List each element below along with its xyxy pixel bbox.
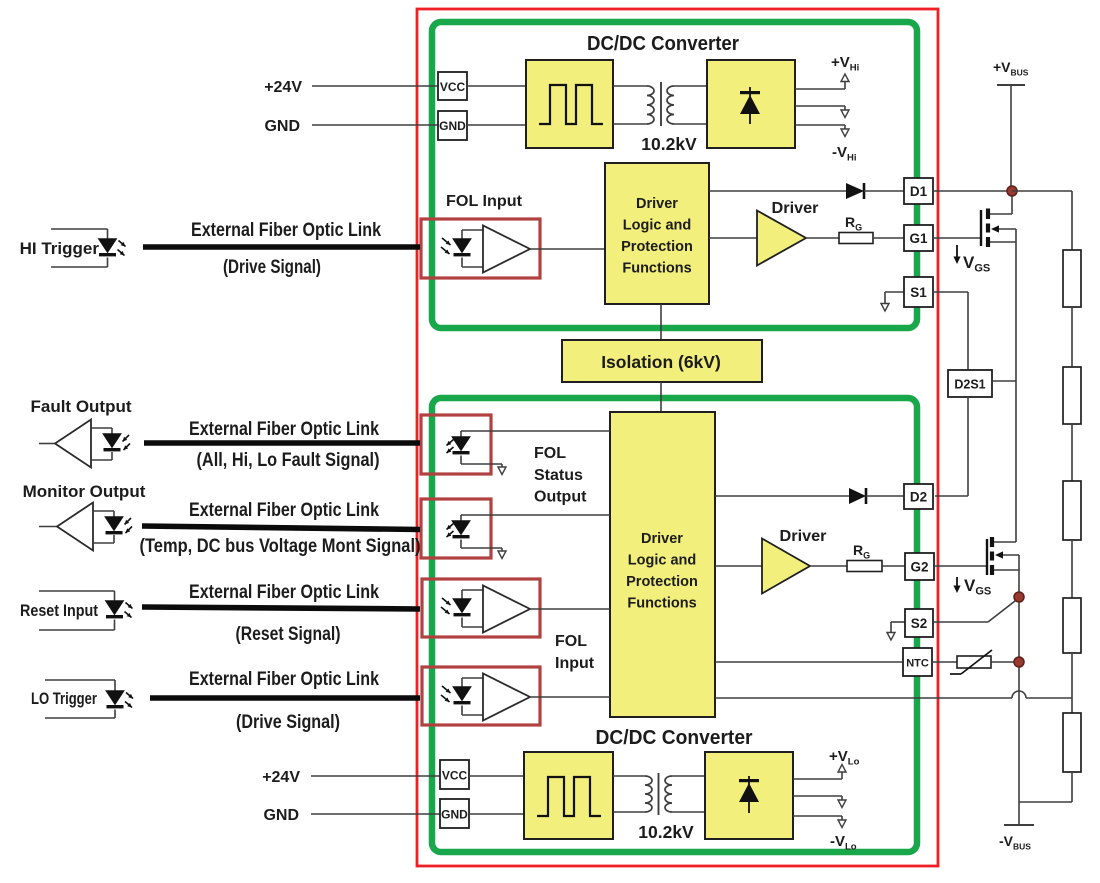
svg-text:GND: GND: [263, 807, 299, 824]
svg-text:G1: G1: [909, 231, 928, 246]
svg-text:Output: Output: [534, 489, 587, 506]
svg-text:RG: RG: [853, 542, 870, 561]
svg-text:FOL: FOL: [534, 445, 566, 462]
svg-text:+24V: +24V: [262, 769, 300, 786]
svg-text:+VBUS: +VBUS: [993, 59, 1029, 78]
svg-text:+24V: +24V: [264, 79, 302, 96]
svg-text:FOL: FOL: [555, 633, 587, 650]
svg-text:External Fiber Optic Link: External Fiber Optic Link: [189, 419, 379, 440]
svg-text:VCC: VCC: [440, 80, 466, 94]
svg-text:Driver: Driver: [636, 196, 678, 212]
svg-text:-VHi: -VHi: [832, 144, 857, 164]
svg-text:Fault Output: Fault Output: [30, 397, 131, 416]
svg-text:Input: Input: [555, 655, 595, 672]
svg-text:Protection: Protection: [626, 574, 698, 590]
svg-text:10.2kV: 10.2kV: [638, 822, 694, 842]
svg-text:Functions: Functions: [627, 596, 696, 612]
svg-text:External Fiber Optic Link: External Fiber Optic Link: [189, 669, 379, 690]
svg-text:External Fiber Optic Link: External Fiber Optic Link: [191, 220, 381, 241]
svg-text:Isolation (6kV): Isolation (6kV): [601, 352, 721, 372]
svg-text:Driver: Driver: [641, 531, 683, 547]
svg-text:(All, Hi, Lo Fault Signal): (All, Hi, Lo Fault Signal): [197, 450, 380, 471]
svg-text:LO Trigger: LO Trigger: [31, 689, 97, 708]
svg-text:D2: D2: [910, 490, 927, 505]
svg-text:10.2kV: 10.2kV: [641, 134, 697, 154]
svg-text:Driver: Driver: [780, 528, 827, 545]
svg-text:VGS: VGS: [964, 576, 991, 598]
svg-text:DC/DC Converter: DC/DC Converter: [596, 727, 753, 749]
svg-text:RG: RG: [845, 214, 862, 233]
svg-text:DC/DC Converter: DC/DC Converter: [587, 33, 739, 55]
svg-text:Functions: Functions: [622, 261, 691, 277]
svg-text:Logic and: Logic and: [623, 218, 691, 234]
svg-text:-VLo: -VLo: [830, 833, 857, 853]
svg-text:Driver: Driver: [772, 200, 819, 217]
svg-text:D2S1: D2S1: [954, 378, 985, 392]
svg-text:G2: G2: [910, 560, 928, 575]
svg-text:S2: S2: [911, 616, 928, 631]
svg-text:External Fiber Optic Link: External Fiber Optic Link: [189, 500, 379, 521]
svg-text:Status: Status: [534, 467, 583, 484]
svg-text:VCC: VCC: [442, 769, 468, 783]
svg-text:Logic and: Logic and: [628, 553, 696, 569]
svg-text:HI Trigger: HI Trigger: [20, 239, 100, 258]
svg-text:(Reset Signal): (Reset Signal): [236, 624, 341, 645]
svg-text:(Temp, DC bus Voltage Mont Sig: (Temp, DC bus Voltage Mont Signal): [140, 536, 421, 557]
svg-text:FOL Input: FOL Input: [446, 193, 523, 210]
svg-text:NTC: NTC: [906, 658, 929, 670]
svg-text:+VLo: +VLo: [829, 748, 860, 768]
svg-text:Monitor Output: Monitor Output: [23, 482, 146, 501]
svg-text:+VHi: +VHi: [831, 54, 859, 74]
svg-text:Reset Input: Reset Input: [20, 601, 98, 620]
svg-text:D1: D1: [910, 184, 928, 199]
svg-text:(Drive Signal): (Drive Signal): [236, 712, 340, 733]
svg-text:(Drive Signal): (Drive Signal): [223, 257, 321, 278]
svg-text:GND: GND: [439, 119, 466, 133]
svg-text:External Fiber Optic Link: External Fiber Optic Link: [189, 582, 379, 603]
svg-text:GND: GND: [441, 808, 468, 822]
svg-text:-VBUS: -VBUS: [999, 833, 1031, 852]
svg-text:VGS: VGS: [963, 253, 990, 275]
svg-text:Protection: Protection: [621, 239, 693, 255]
svg-text:S1: S1: [910, 285, 927, 300]
svg-text:GND: GND: [264, 118, 300, 135]
